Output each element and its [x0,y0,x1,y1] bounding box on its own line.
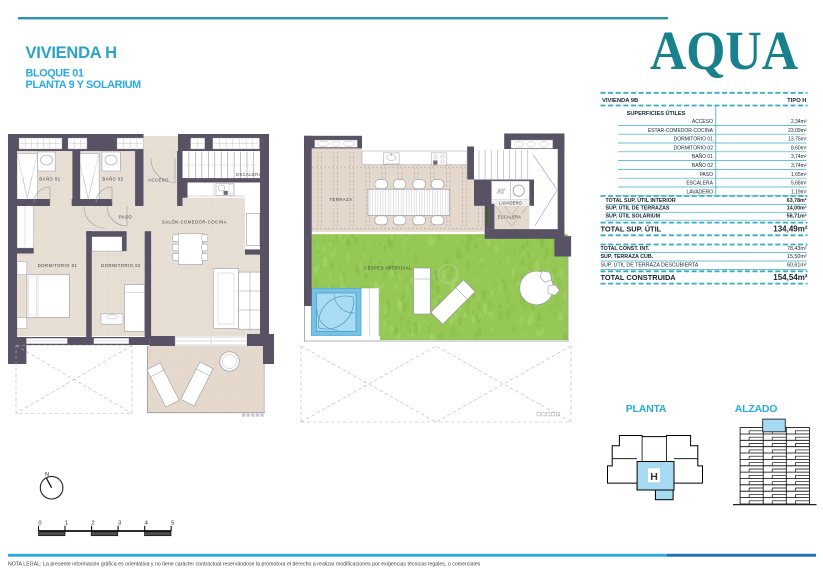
svg-text:AQUA: AQUA [650,20,798,81]
svg-text:ALZADO: ALZADO [735,403,778,415]
svg-text:H: H [650,471,658,483]
svg-text:ACCESO: ACCESO [148,178,169,183]
svg-text:SUP. ÚTIL SOLARIUM: SUP. ÚTIL SOLARIUM [606,213,661,220]
svg-text:3,74m²: 3,74m² [791,163,807,169]
svg-text:14,00m²: 14,00m² [787,206,807,212]
svg-text:154,54m²: 154,54m² [773,273,808,282]
svg-text:PASO: PASO [699,172,713,178]
svg-text:ESCALERA: ESCALERA [686,181,713,187]
svg-text:63,78m²: 63,78m² [787,198,807,204]
svg-text:DORMITORIO 02: DORMITORIO 02 [101,263,141,268]
svg-text:1: 1 [65,521,68,527]
svg-text:BLOQUE 01: BLOQUE 01 [26,68,84,80]
svg-text:SUP. ÚTIL DE TERRAZA DESCUBIER: SUP. ÚTIL DE TERRAZA DESCUBIERTA [601,262,699,269]
svg-text:SUP. TERRAZA CUB.: SUP. TERRAZA CUB. [601,254,654,260]
svg-text:TOTAL CONSTRUIDA: TOTAL CONSTRUIDA [601,273,677,282]
svg-text:5: 5 [171,521,174,527]
svg-text:VIVIENDA 9B: VIVIENDA 9B [602,98,638,104]
svg-text:VIVIENDA H: VIVIENDA H [26,44,117,62]
svg-text:CESPED ARTIFICIAL: CESPED ARTIFICIAL [364,266,412,271]
svg-text:TOTAL SUP. ÚTIL INTERIOR: TOTAL SUP. ÚTIL INTERIOR [606,197,676,204]
svg-text:ESTAR-COMEDOR-COCINA: ESTAR-COMEDOR-COCINA [648,128,714,134]
svg-text:NOTA LEGAL: La presente inform: NOTA LEGAL: La presente información gráf… [8,562,481,568]
svg-text:SUPERFICIES ÚTILES: SUPERFICIES ÚTILES [627,110,686,117]
svg-text:SALÓN-COMEDOR-COCINA: SALÓN-COMEDOR-COCINA [162,220,227,225]
svg-text:PASO: PASO [119,215,133,220]
svg-text:TERRAZA: TERRAZA [329,197,352,202]
svg-text:3: 3 [118,521,121,527]
svg-text:BAÑO 02: BAÑO 02 [692,162,713,169]
svg-text:TOTAL SUP. ÚTIL: TOTAL SUP. ÚTIL [601,225,662,234]
svg-text:DORMITORIO 01: DORMITORIO 01 [38,263,78,268]
svg-text:8,60m²: 8,60m² [791,145,807,151]
svg-text:N: N [45,472,49,478]
svg-text:LAVADERO: LAVADERO [687,189,714,195]
svg-text:2: 2 [91,521,94,527]
svg-text:4: 4 [145,521,149,527]
svg-text:PLANTA 9 Y SOLARIUM: PLANTA 9 Y SOLARIUM [26,79,142,91]
svg-text:BAÑO 01: BAÑO 01 [39,177,60,182]
svg-text:TOTAL CONST. INT.: TOTAL CONST. INT. [601,246,650,252]
svg-text:2,34m²: 2,34m² [791,119,807,125]
svg-text:0: 0 [38,521,41,527]
svg-text:1,65m²: 1,65m² [791,172,807,178]
svg-text:3,74m²: 3,74m² [791,154,807,160]
svg-text:BAÑO 01: BAÑO 01 [692,153,713,160]
svg-text:BAÑO 02: BAÑO 02 [102,177,123,182]
svg-text:1,19m²: 1,19m² [791,189,807,195]
svg-text:DORMITORIO 02: DORMITORIO 02 [674,145,714,151]
svg-text:13,75m²: 13,75m² [788,137,807,143]
svg-text:ESCALERA: ESCALERA [498,215,521,220]
svg-text:5,68m²: 5,68m² [791,181,807,187]
svg-text:134,49m²: 134,49m² [773,225,808,234]
svg-text:PLANTA: PLANTA [626,403,667,415]
svg-text:LAVADERO: LAVADERO [499,200,523,205]
svg-text:SUP. ÚTIL DE TERRAZAS: SUP. ÚTIL DE TERRAZAS [606,205,670,212]
svg-text:ACCESO: ACCESO [692,119,713,125]
svg-text:78,43m²: 78,43m² [787,246,807,252]
svg-text:15,50m²: 15,50m² [787,254,807,260]
svg-text:ESCALERA: ESCALERA [236,172,262,177]
svg-text:DORMITORIO 01: DORMITORIO 01 [674,137,714,143]
svg-text:TIPO H: TIPO H [787,98,806,104]
svg-text:AT: AT [497,189,505,196]
svg-text:60,61m²: 60,61m² [787,263,807,269]
svg-text:56,71m²: 56,71m² [787,214,807,220]
svg-text:23,09m²: 23,09m² [788,128,807,134]
